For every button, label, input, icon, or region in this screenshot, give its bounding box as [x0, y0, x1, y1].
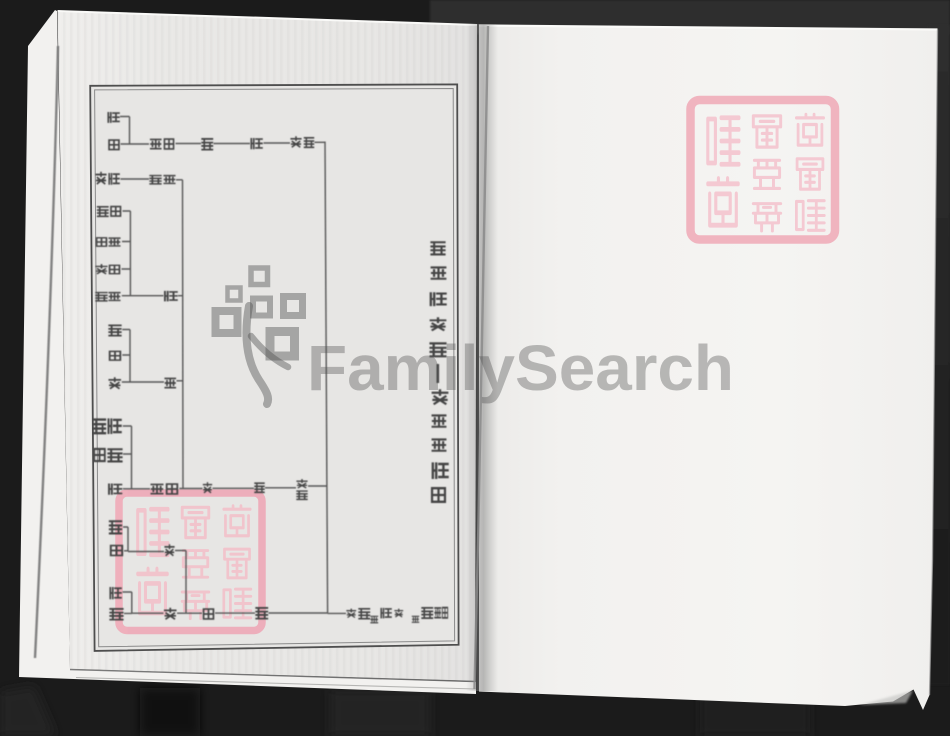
svg-text:FamilySearch: FamilySearch: [307, 332, 734, 404]
